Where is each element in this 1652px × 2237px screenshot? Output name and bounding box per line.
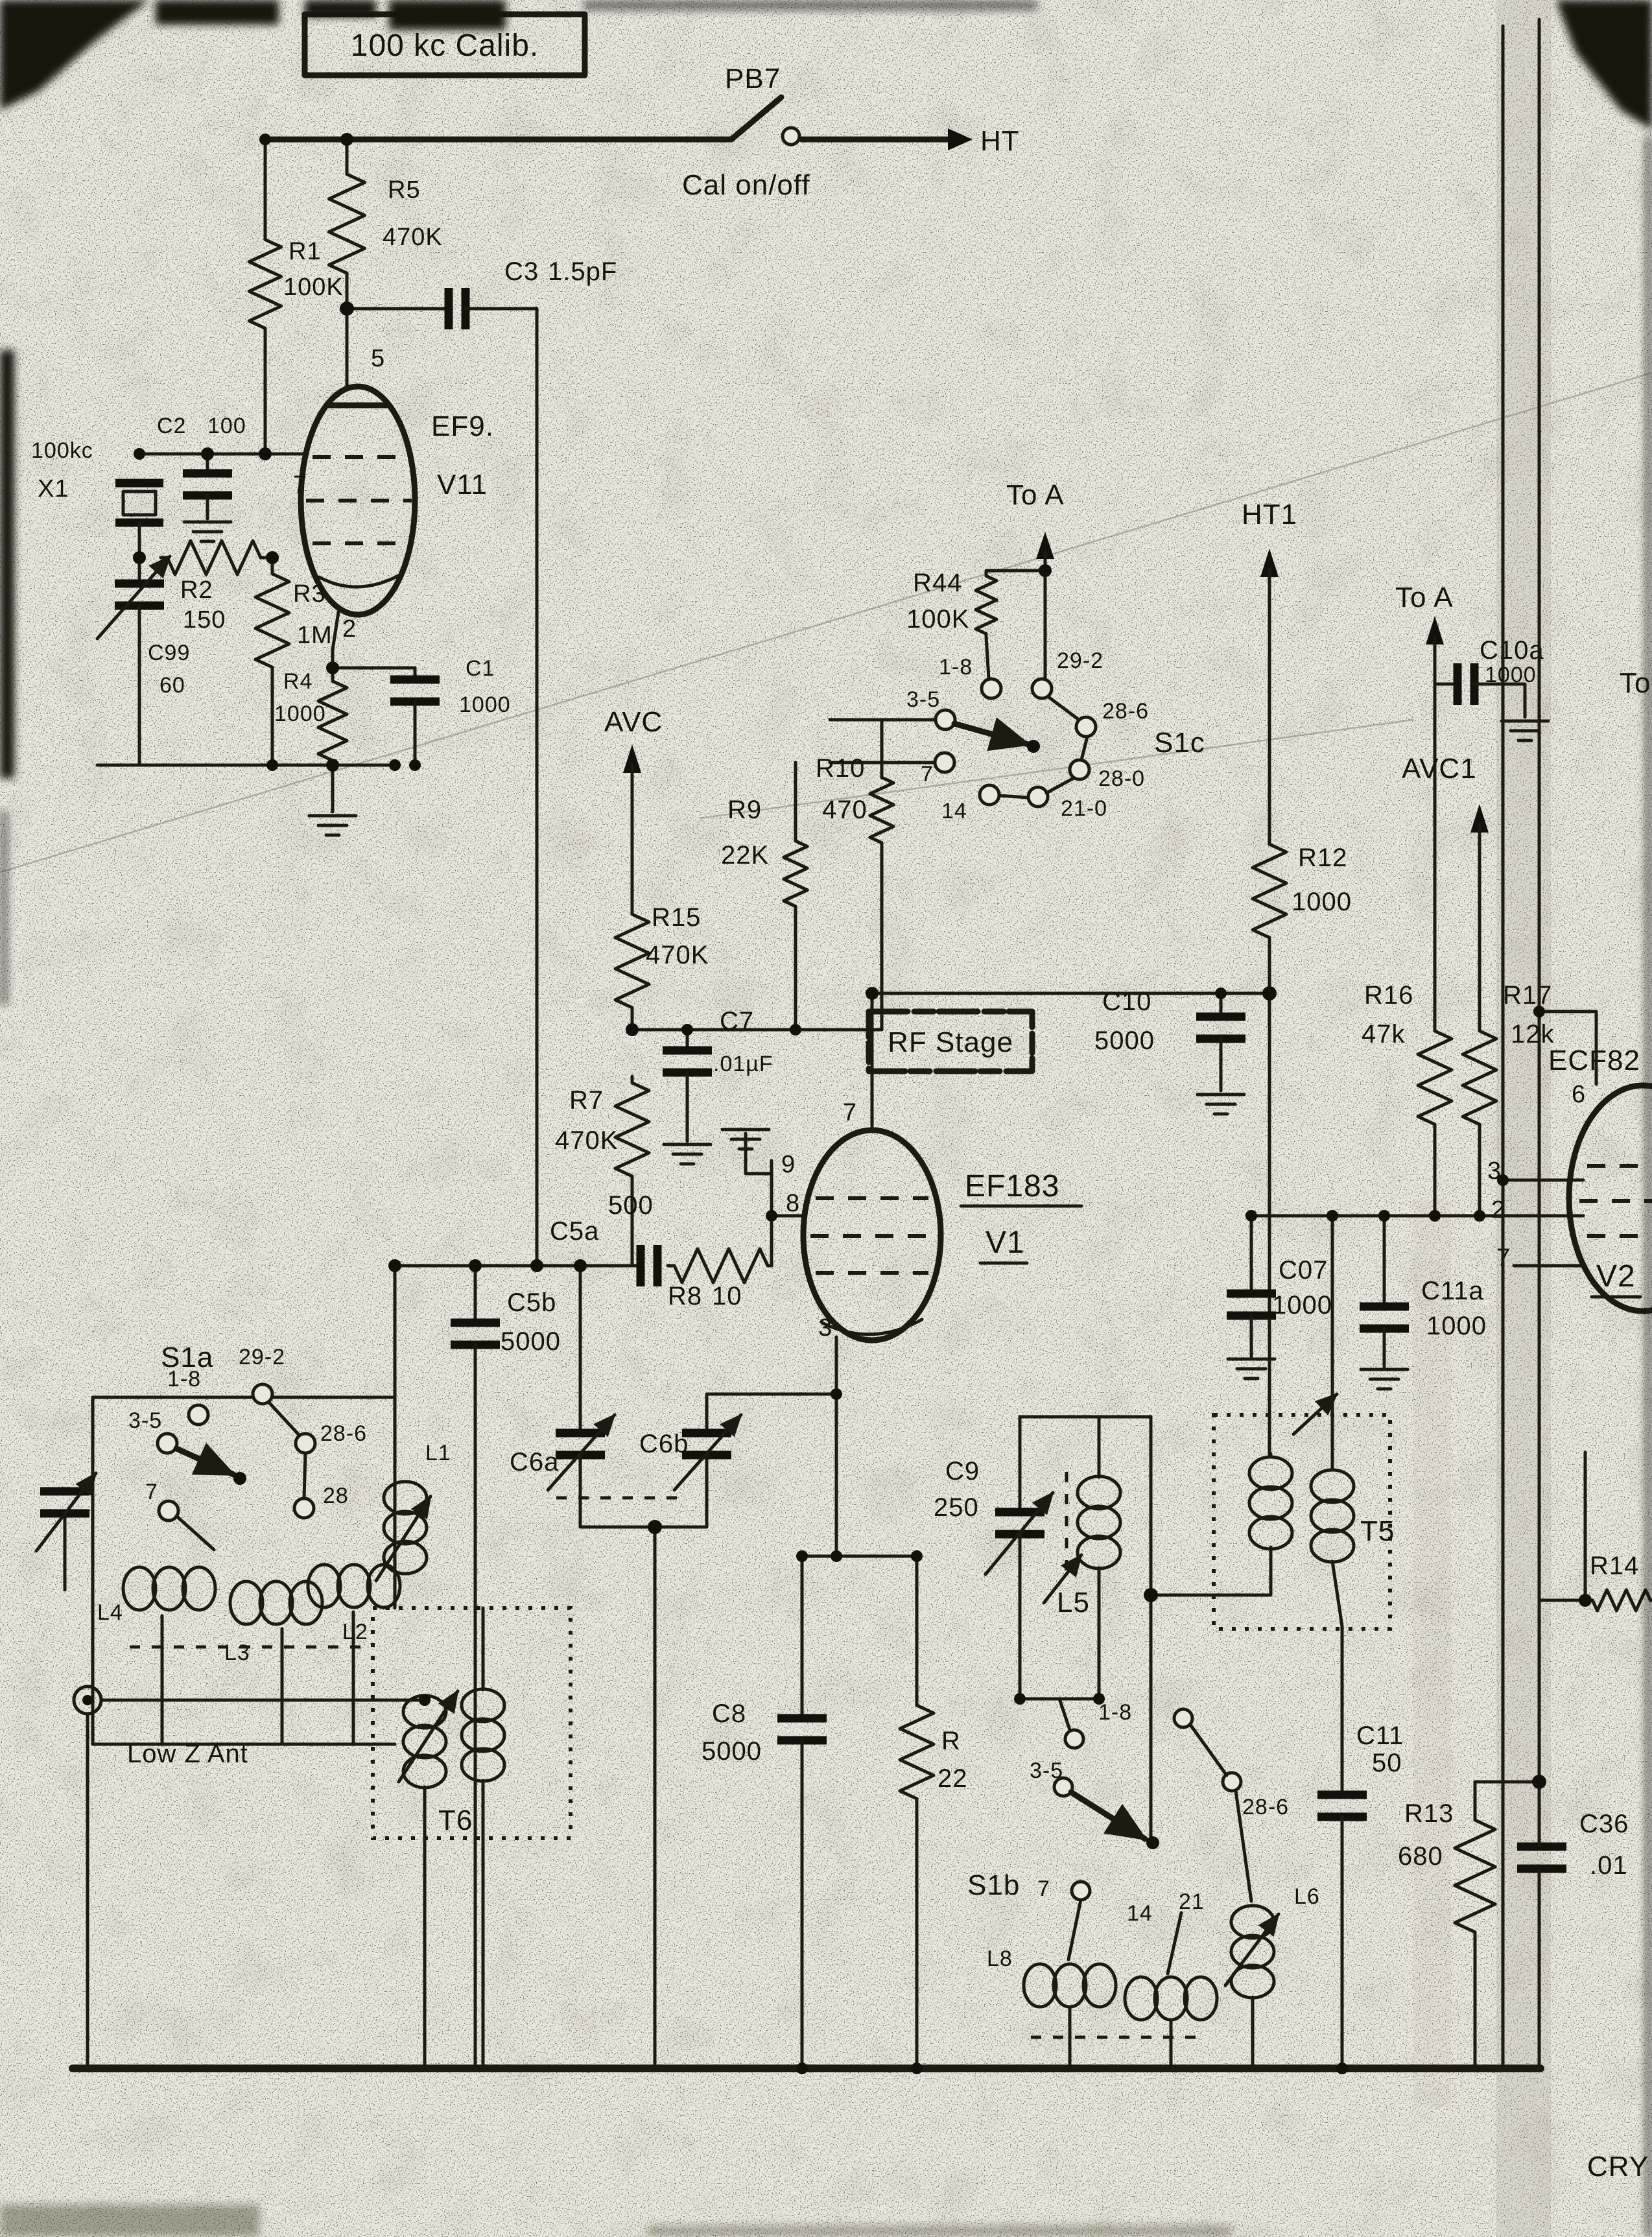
svg-text:L1: L1 (425, 1441, 451, 1465)
tube-name: V2 (1596, 1259, 1636, 1294)
svg-text:28-0: 28-0 (1098, 766, 1145, 791)
svg-text:C7: C7 (720, 1007, 754, 1036)
svg-text:22: 22 (938, 1764, 968, 1793)
svg-text:R13: R13 (1404, 1799, 1454, 1828)
svg-text:R14: R14 (1590, 1552, 1639, 1580)
svg-text:R2: R2 (180, 576, 213, 604)
s1b-label: S1b (967, 1869, 1020, 1901)
svg-text:R5: R5 (388, 176, 421, 204)
svg-text:3-5: 3-5 (906, 687, 940, 712)
svg-text:C36: C36 (1579, 1810, 1629, 1838)
svg-text:L8: L8 (987, 1947, 1013, 1971)
svg-text:1.5pF: 1.5pF (548, 257, 617, 286)
svg-text:28-6: 28-6 (320, 1421, 367, 1446)
svg-text:R44: R44 (913, 569, 962, 597)
svg-text:28-6: 28-6 (1242, 1795, 1289, 1819)
svg-text:X1: X1 (38, 475, 69, 503)
svg-text:7: 7 (1037, 1876, 1050, 1901)
scanned-schematic-page: 100 kc Calib. PB7 Cal on/off HT R1 100K … (0, 0, 1652, 2237)
svg-text:C3: C3 (504, 257, 539, 286)
svg-text:C11: C11 (1356, 1722, 1404, 1750)
svg-text:R7: R7 (569, 1086, 604, 1115)
svg-text:100kc: 100kc (31, 438, 93, 463)
svg-text:21: 21 (1179, 1889, 1205, 1914)
svg-text:470K: 470K (383, 224, 443, 251)
svg-text:10: 10 (712, 1282, 742, 1310)
pin9-label: 9 (781, 1151, 796, 1178)
svg-text:L3: L3 (224, 1640, 250, 1665)
svg-text:22K: 22K (721, 841, 769, 870)
avc-label: AVC (604, 706, 663, 738)
svg-text:R9: R9 (727, 796, 762, 824)
pin3-label: 3 (818, 1314, 832, 1342)
svg-text:150: 150 (183, 606, 226, 633)
svg-text:C6a: C6a (510, 1448, 559, 1476)
svg-text:28: 28 (323, 1484, 349, 1508)
svg-text:7: 7 (921, 762, 934, 787)
svg-text:100K: 100K (906, 605, 969, 633)
svg-text:28-6: 28-6 (1102, 699, 1149, 724)
svg-text:R12: R12 (1298, 844, 1347, 872)
svg-text:R16: R16 (1364, 981, 1413, 1010)
svg-text:21-0: 21-0 (1061, 796, 1107, 821)
svg-text:500: 500 (608, 1191, 654, 1220)
pin7-label: 7 (843, 1099, 857, 1126)
paper-speckle-texture (0, 0, 1652, 2237)
svg-text:.01: .01 (1590, 1851, 1628, 1880)
svg-text:14: 14 (1127, 1901, 1153, 1926)
svg-text:5000: 5000 (702, 1737, 762, 1766)
svg-text:L4: L4 (97, 1600, 123, 1625)
svg-text:R3: R3 (293, 580, 326, 608)
svg-text:C9: C9 (945, 1457, 980, 1485)
svg-text:1000: 1000 (1426, 1312, 1487, 1340)
svg-text:C8: C8 (712, 1699, 746, 1728)
svg-text:1-8: 1-8 (167, 1367, 201, 1391)
s1c-label: S1c (1154, 727, 1205, 759)
svg-text:14: 14 (941, 799, 967, 823)
tube-name: V1 (985, 1225, 1025, 1260)
svg-text:C6b: C6b (639, 1430, 689, 1458)
svg-text:3-5: 3-5 (128, 1408, 162, 1433)
svg-text:5000: 5000 (1094, 1026, 1155, 1055)
t6-label: T6 (438, 1805, 473, 1836)
svg-text:R4: R4 (283, 669, 313, 694)
svg-text:250: 250 (934, 1493, 979, 1522)
to-a-label-1: To A (1006, 479, 1065, 511)
svg-text:L5: L5 (1057, 1587, 1090, 1618)
svg-text:7: 7 (145, 1480, 158, 1504)
corner-cut-label: CRY (1587, 2151, 1649, 2183)
svg-text:1-8: 1-8 (939, 655, 973, 680)
svg-text:R15: R15 (652, 903, 701, 932)
svg-text:1000: 1000 (1272, 1291, 1332, 1320)
svg-text:1M: 1M (297, 622, 333, 649)
svg-text:R1: R1 (289, 238, 322, 265)
svg-text:.01µF: .01µF (713, 1052, 773, 1076)
pin5-label: 5 (371, 345, 385, 372)
svg-text:R10: R10 (816, 754, 865, 783)
to-a-label-2: To A (1395, 582, 1454, 613)
svg-text:C5b: C5b (507, 1288, 556, 1317)
svg-text:R8: R8 (668, 1282, 702, 1310)
svg-text:C99: C99 (148, 641, 190, 665)
svg-text:C10a: C10a (1480, 636, 1544, 665)
svg-text:29-2: 29-2 (239, 1345, 285, 1369)
svg-text:R: R (941, 1727, 961, 1755)
svg-text:470: 470 (822, 796, 867, 824)
svg-text:C07: C07 (1279, 1256, 1328, 1284)
svg-text:470K: 470K (555, 1126, 618, 1155)
cal-onoff-label: Cal on/off (682, 169, 810, 201)
pin6-label: 6 (1572, 1081, 1586, 1108)
svg-text:100K: 100K (283, 274, 344, 301)
svg-text:C11a: C11a (1421, 1277, 1484, 1305)
low-z-ant-label: Low Z Ant (127, 1740, 248, 1768)
svg-text:5000: 5000 (501, 1327, 561, 1356)
svg-text:1-8: 1-8 (1098, 1700, 1132, 1725)
svg-text:1000: 1000 (274, 702, 326, 726)
ht1-label: HT1 (1242, 499, 1297, 530)
svg-text:100: 100 (207, 414, 246, 438)
svg-text:29-2: 29-2 (1057, 648, 1103, 673)
scan-stain-band (1496, 0, 1551, 2237)
t5-label: T5 (1360, 1515, 1395, 1547)
svg-text:L2: L2 (342, 1620, 368, 1644)
pin7-label: 7 (293, 471, 307, 499)
tube-type: EF9. (431, 410, 494, 442)
pb7-label: PB7 (725, 63, 781, 95)
svg-text:C5a: C5a (550, 1217, 599, 1246)
svg-text:3-5: 3-5 (1030, 1758, 1063, 1783)
avc1-label: AVC1 (1402, 753, 1477, 785)
ecf82-label: ECF82 (1548, 1045, 1640, 1076)
page-title: 100 kc Calib. (351, 29, 539, 63)
pin8-label: 8 (786, 1190, 800, 1217)
tube-name: V11 (437, 469, 488, 501)
pb7-switch-contact (783, 128, 799, 145)
svg-text:1000: 1000 (1292, 888, 1352, 916)
svg-text:C10: C10 (1102, 988, 1151, 1016)
svg-text:60: 60 (159, 673, 185, 698)
svg-text:47k: 47k (1362, 1020, 1406, 1048)
ht-label: HT (980, 125, 1020, 157)
pin2-label: 2 (342, 615, 357, 643)
svg-text:C1: C1 (466, 656, 495, 681)
svg-text:50: 50 (1372, 1749, 1402, 1777)
svg-text:R17: R17 (1503, 981, 1552, 1010)
svg-text:C2: C2 (157, 414, 186, 438)
rf-stage-label: RF Stage (888, 1026, 1013, 1058)
tube-type: EF183 (965, 1169, 1059, 1203)
svg-text:470K: 470K (646, 941, 709, 969)
svg-text:L6: L6 (1294, 1884, 1320, 1909)
svg-text:1000: 1000 (1485, 663, 1537, 687)
svg-text:680: 680 (1398, 1842, 1443, 1871)
svg-text:1000: 1000 (459, 692, 511, 717)
schematic-canvas: 100 kc Calib. PB7 Cal on/off HT R1 100K … (0, 0, 1652, 2237)
